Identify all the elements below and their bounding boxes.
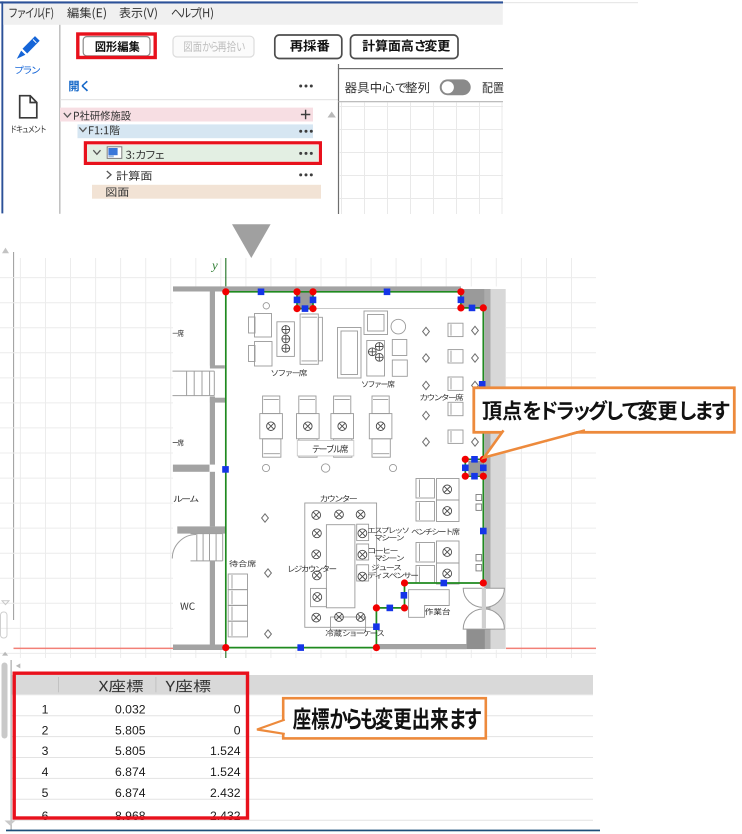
svg-text:6: 6 bbox=[42, 809, 49, 823]
svg-text:6.874: 6.874 bbox=[115, 765, 146, 779]
svg-text:1: 1 bbox=[42, 702, 49, 716]
svg-text:5: 5 bbox=[42, 786, 49, 800]
svg-text:4: 4 bbox=[42, 765, 49, 779]
svg-text:0: 0 bbox=[234, 702, 241, 716]
svg-text:2.432: 2.432 bbox=[210, 786, 241, 800]
svg-text:y: y bbox=[210, 258, 218, 273]
svg-text:5.805: 5.805 bbox=[115, 744, 146, 758]
svg-text:6.874: 6.874 bbox=[115, 786, 146, 800]
svg-text:8.968: 8.968 bbox=[115, 809, 146, 823]
svg-text:1.524: 1.524 bbox=[210, 744, 241, 758]
svg-text:0: 0 bbox=[234, 723, 241, 737]
svg-text:3: 3 bbox=[42, 744, 49, 758]
svg-text:5.805: 5.805 bbox=[115, 723, 146, 737]
svg-text:2: 2 bbox=[42, 723, 49, 737]
svg-text:0.032: 0.032 bbox=[115, 702, 146, 716]
svg-text:1.524: 1.524 bbox=[210, 765, 241, 779]
svg-text:2.432: 2.432 bbox=[210, 809, 241, 823]
